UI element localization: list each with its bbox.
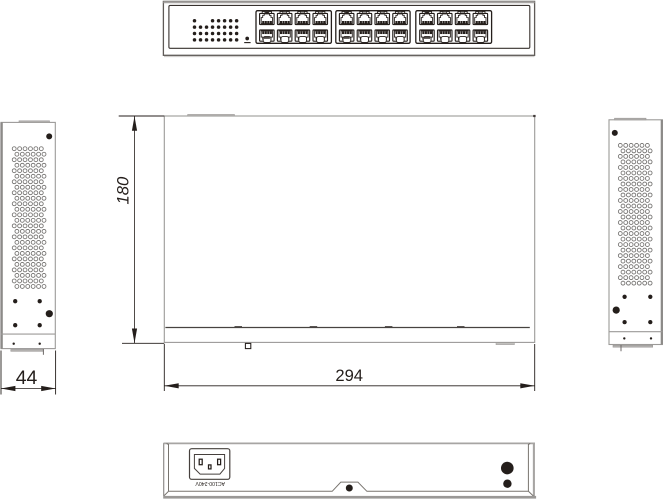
svg-text:44: 44 bbox=[16, 367, 38, 389]
svg-text:294: 294 bbox=[335, 366, 363, 385]
svg-text:AC100-240V: AC100-240V bbox=[195, 480, 225, 486]
svg-text:180: 180 bbox=[113, 176, 132, 204]
